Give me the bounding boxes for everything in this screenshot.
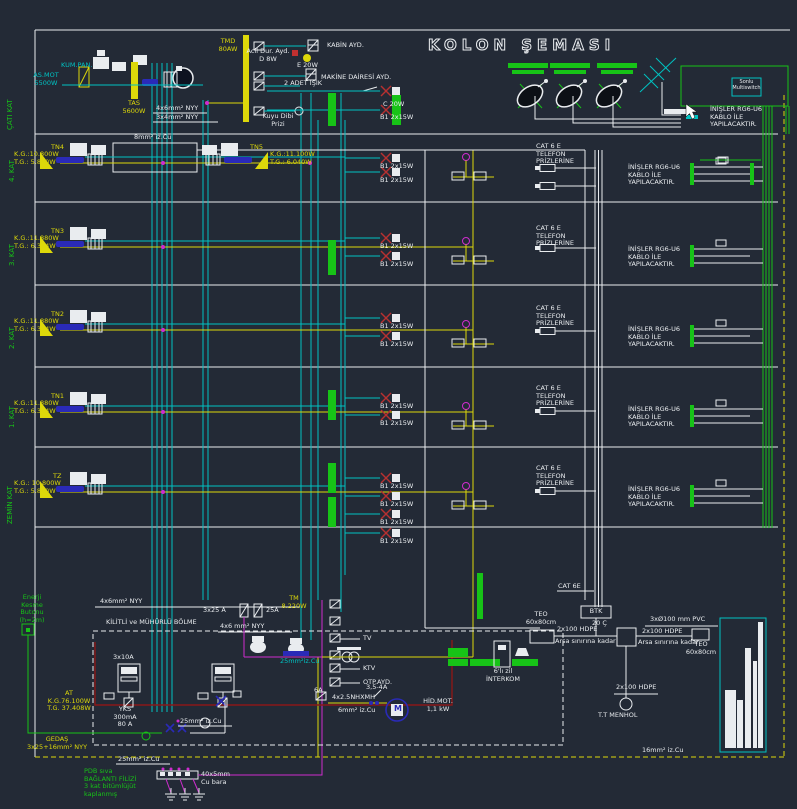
pvc-label: 3xØ100 mm PVC [650, 616, 705, 624]
panel-load-tn3: K.G.:11.880W T.G.: 6.344W [14, 235, 59, 250]
pit-socket-icon [295, 107, 303, 115]
page-title: KOLON ŞEMASI [428, 36, 615, 54]
nyy-b-label: 4x6 mm² NYY [220, 623, 264, 631]
intercom-units [448, 641, 538, 667]
emergency-stop-icon [292, 50, 298, 56]
energy-meter-icon [118, 664, 140, 707]
breaker-icon [254, 82, 264, 90]
floor-label-cati: ÇATI KAT [6, 99, 14, 130]
panel-load-tn1: K.G.:11.880W T.G.: 6.344W [14, 400, 59, 415]
panel-name-tn5: TN5 [250, 144, 263, 152]
a6-label: 6A [314, 687, 323, 695]
tm-panel [316, 600, 361, 700]
teo-label: TEO 60x80cm [524, 611, 558, 626]
teo-label: TEO 60x80cm [684, 641, 718, 656]
phone-jack-icon [535, 328, 596, 335]
panel-load-tz: K.G.: 10.800W T.G.: 5.840W [14, 480, 61, 495]
tm-label: TM 8.220W [276, 595, 312, 610]
c20-label: C 20W [383, 101, 404, 109]
b1-label: B1 2x15W [380, 403, 413, 411]
feed-a-label: 4x6mm² NYY [156, 105, 198, 113]
kilitli-label: KİLİTLİ ve MÜHÜRLÜ BÖLME [106, 619, 197, 627]
b1-label: B1 2x15W [380, 177, 413, 185]
inisler-label: İNİŞLER RG6-U6 KABLO İLE YAPILACAKTIR. [628, 164, 680, 187]
tv-splitter-icon [690, 320, 763, 347]
cat-tel-label: CAT 6 E TELEFON PRİZLERİNE [536, 465, 574, 488]
pdb-label: PDB sıva BAĞLANTI FİLİZİ 3 kat bitümlüjü… [84, 768, 136, 798]
b1-label: B1 2x15W [380, 501, 413, 509]
cu8-label: 8mm² iz.Cu [134, 134, 171, 142]
b1-label: B1 2x15W [380, 323, 413, 331]
enerji-label: Enerji Kesme Butonu (h=2m) [14, 594, 50, 624]
b1-label: B1 2x15W [380, 341, 413, 349]
hdpe-label: 2x100 HDPE [616, 684, 656, 692]
gedas-label: GEDAŞ 3x25+16mm² NYY [20, 736, 94, 751]
panel-load-tn2: K.G.:11.880W T.G.: 6.344W [14, 318, 59, 333]
tas-label: TAS 5600W [119, 100, 149, 115]
tv-splitter-icon [690, 480, 763, 507]
interkom-label: 6'lı zil İNTERKOM [484, 668, 522, 683]
junction-chamber [617, 628, 636, 646]
hdpe-label: 2x100 HDPE [557, 626, 597, 634]
cu16-label: 16mm² iz.Cu [642, 747, 684, 755]
cu25-label: 25mm² iz.Cu [180, 718, 222, 726]
multiswitch-label: Sonlu Multiswitch [731, 79, 762, 91]
terrestrial-antenna-icon [640, 58, 676, 92]
makine-label: MAKİNE DAİRESİ AYD. [321, 74, 391, 82]
b1-label: B1 2x15W [380, 114, 413, 122]
fuse-icon [254, 604, 262, 617]
grounding-detail [720, 618, 766, 752]
cat-tel-label: CAT 6 E TELEFON PRİZLERİNE [536, 225, 574, 248]
fuse-icon [240, 604, 248, 617]
cat-tel-label: CAT 6 E TELEFON PRİZLERİNE [536, 385, 574, 408]
phone-jack-icon [535, 183, 596, 190]
fuse-3x25-label: 3x25 A [203, 607, 226, 615]
teo-chamber [530, 630, 554, 643]
as-mot-label: AS.MOT 5500W [26, 72, 66, 87]
a3x10-label: 3x10A [113, 654, 134, 662]
inisler-label: İNİŞLER RG6-U6 KABLO İLE YAPILACAKTIR. [628, 246, 680, 269]
cu25c-label: 25mm²iz.Cu [280, 658, 319, 666]
tv-splitter-icon [690, 400, 763, 427]
panel-load-tn5: K.G.:11.100W T.G.: 6.040W [270, 151, 315, 166]
ktv-label: KTV [363, 665, 375, 673]
kuyu-label: Kuyu Dibi Prizi [260, 113, 296, 128]
earth-electrode-icon [165, 788, 177, 800]
cat-tel-label: CAT 6 E TELEFON PRİZLERİNE [536, 305, 574, 328]
kum-pan-label: KUM.PAN. [61, 62, 92, 70]
cat6e-label: CAT 6E [558, 583, 581, 591]
manhole-icon [620, 698, 632, 710]
b1-label: B1 2x15W [380, 243, 413, 251]
energy-meter-icon [212, 664, 234, 707]
btk-label: BTK [582, 608, 610, 616]
riser-diagram-canvas: KOLON ŞEMASI ÇATI KAT 4. KAT 3. KAT 2. K… [0, 0, 797, 809]
cat-tel-label: CAT 6 E TELEFON PRİZLERİNE [536, 143, 574, 166]
bara-label: 40x5mm Cu bara [201, 771, 230, 786]
yks-label: YKS 300mA 80 A [110, 706, 140, 729]
hdpe-label: 2x100 HDPE [642, 628, 682, 636]
panel-load-tn4: K.G.:10.800W T.G.: 5.840W [14, 151, 59, 166]
b1-label: B1 2x15W [380, 538, 413, 546]
tmd-label: TMD 80AW [214, 38, 242, 53]
acil-label: Acil Dur. Ayd. D 8W [246, 48, 290, 63]
nhxmh-label: 4x2.5NHXMH [332, 694, 375, 702]
floor-label-zemin: ZEMİN KAT [6, 486, 14, 524]
arsa-label: Arsa sınırına kadar [555, 638, 616, 646]
earthing-busbar [157, 757, 322, 800]
breaker-icon [254, 72, 264, 80]
cu6-label: 6mm² iz.Cu [338, 707, 375, 715]
a354-label: 3,5-4A [366, 684, 387, 692]
feed-b-label: 3x4mm² NYY [156, 114, 198, 122]
tas-panel-icon [131, 62, 138, 99]
hid-label: HİD.MOT. 1,1 kW [416, 698, 460, 713]
b1-label: B1 2x15W [380, 519, 413, 527]
sealed-compartment-box [93, 631, 563, 745]
e20-label: E 20W [297, 62, 318, 70]
tv-label: TV [363, 635, 371, 643]
menhol-label: T.T MENHOL [598, 712, 638, 720]
phone-jack-icon [535, 408, 596, 415]
b1-label: B1 2x15W [380, 420, 413, 428]
kabin-label: KABİN AYD. [327, 42, 364, 50]
b1-label: B1 2x15W [380, 163, 413, 171]
cabin-light-icon [308, 40, 318, 51]
satellite-dish-icon [592, 79, 627, 111]
inisler-label: İNİŞLER RG6-U6 KABLO İLE YAPILACAKTIR. [710, 106, 762, 129]
nyy-a-label: 4x6mm² NYY [100, 598, 142, 606]
satellite-dish-icon [513, 79, 548, 111]
at-label: AT K.G.76.100W T.G. 37.408W [38, 690, 100, 713]
b1-label: B1 2x15W [380, 483, 413, 491]
b1-label: B1 2x15W [380, 261, 413, 269]
phone-jack-icon [535, 488, 596, 495]
inisler-label: İNİŞLER RG6-U6 KABLO İLE YAPILACAKTIR. [628, 486, 680, 509]
satellite-dish-icon [552, 79, 587, 111]
motor-m-label: M [394, 705, 402, 713]
inisler-label: İNİŞLER RG6-U6 KABLO İLE YAPILACAKTIR. [628, 406, 680, 429]
cu25-label: 25mm² iz.Cu [118, 756, 160, 764]
lamp-icon [381, 86, 400, 96]
phone-jack-icon [535, 165, 596, 172]
iki-adet-label: 2 ADET IŞIK [284, 80, 322, 88]
tv-splitter-icon [690, 240, 763, 267]
earth-electrode-icon [179, 788, 191, 800]
earth-electrode-icon [193, 788, 205, 800]
inisler-label: İNİŞLER RG6-U6 KABLO İLE YAPILACAKTIR. [628, 326, 680, 349]
